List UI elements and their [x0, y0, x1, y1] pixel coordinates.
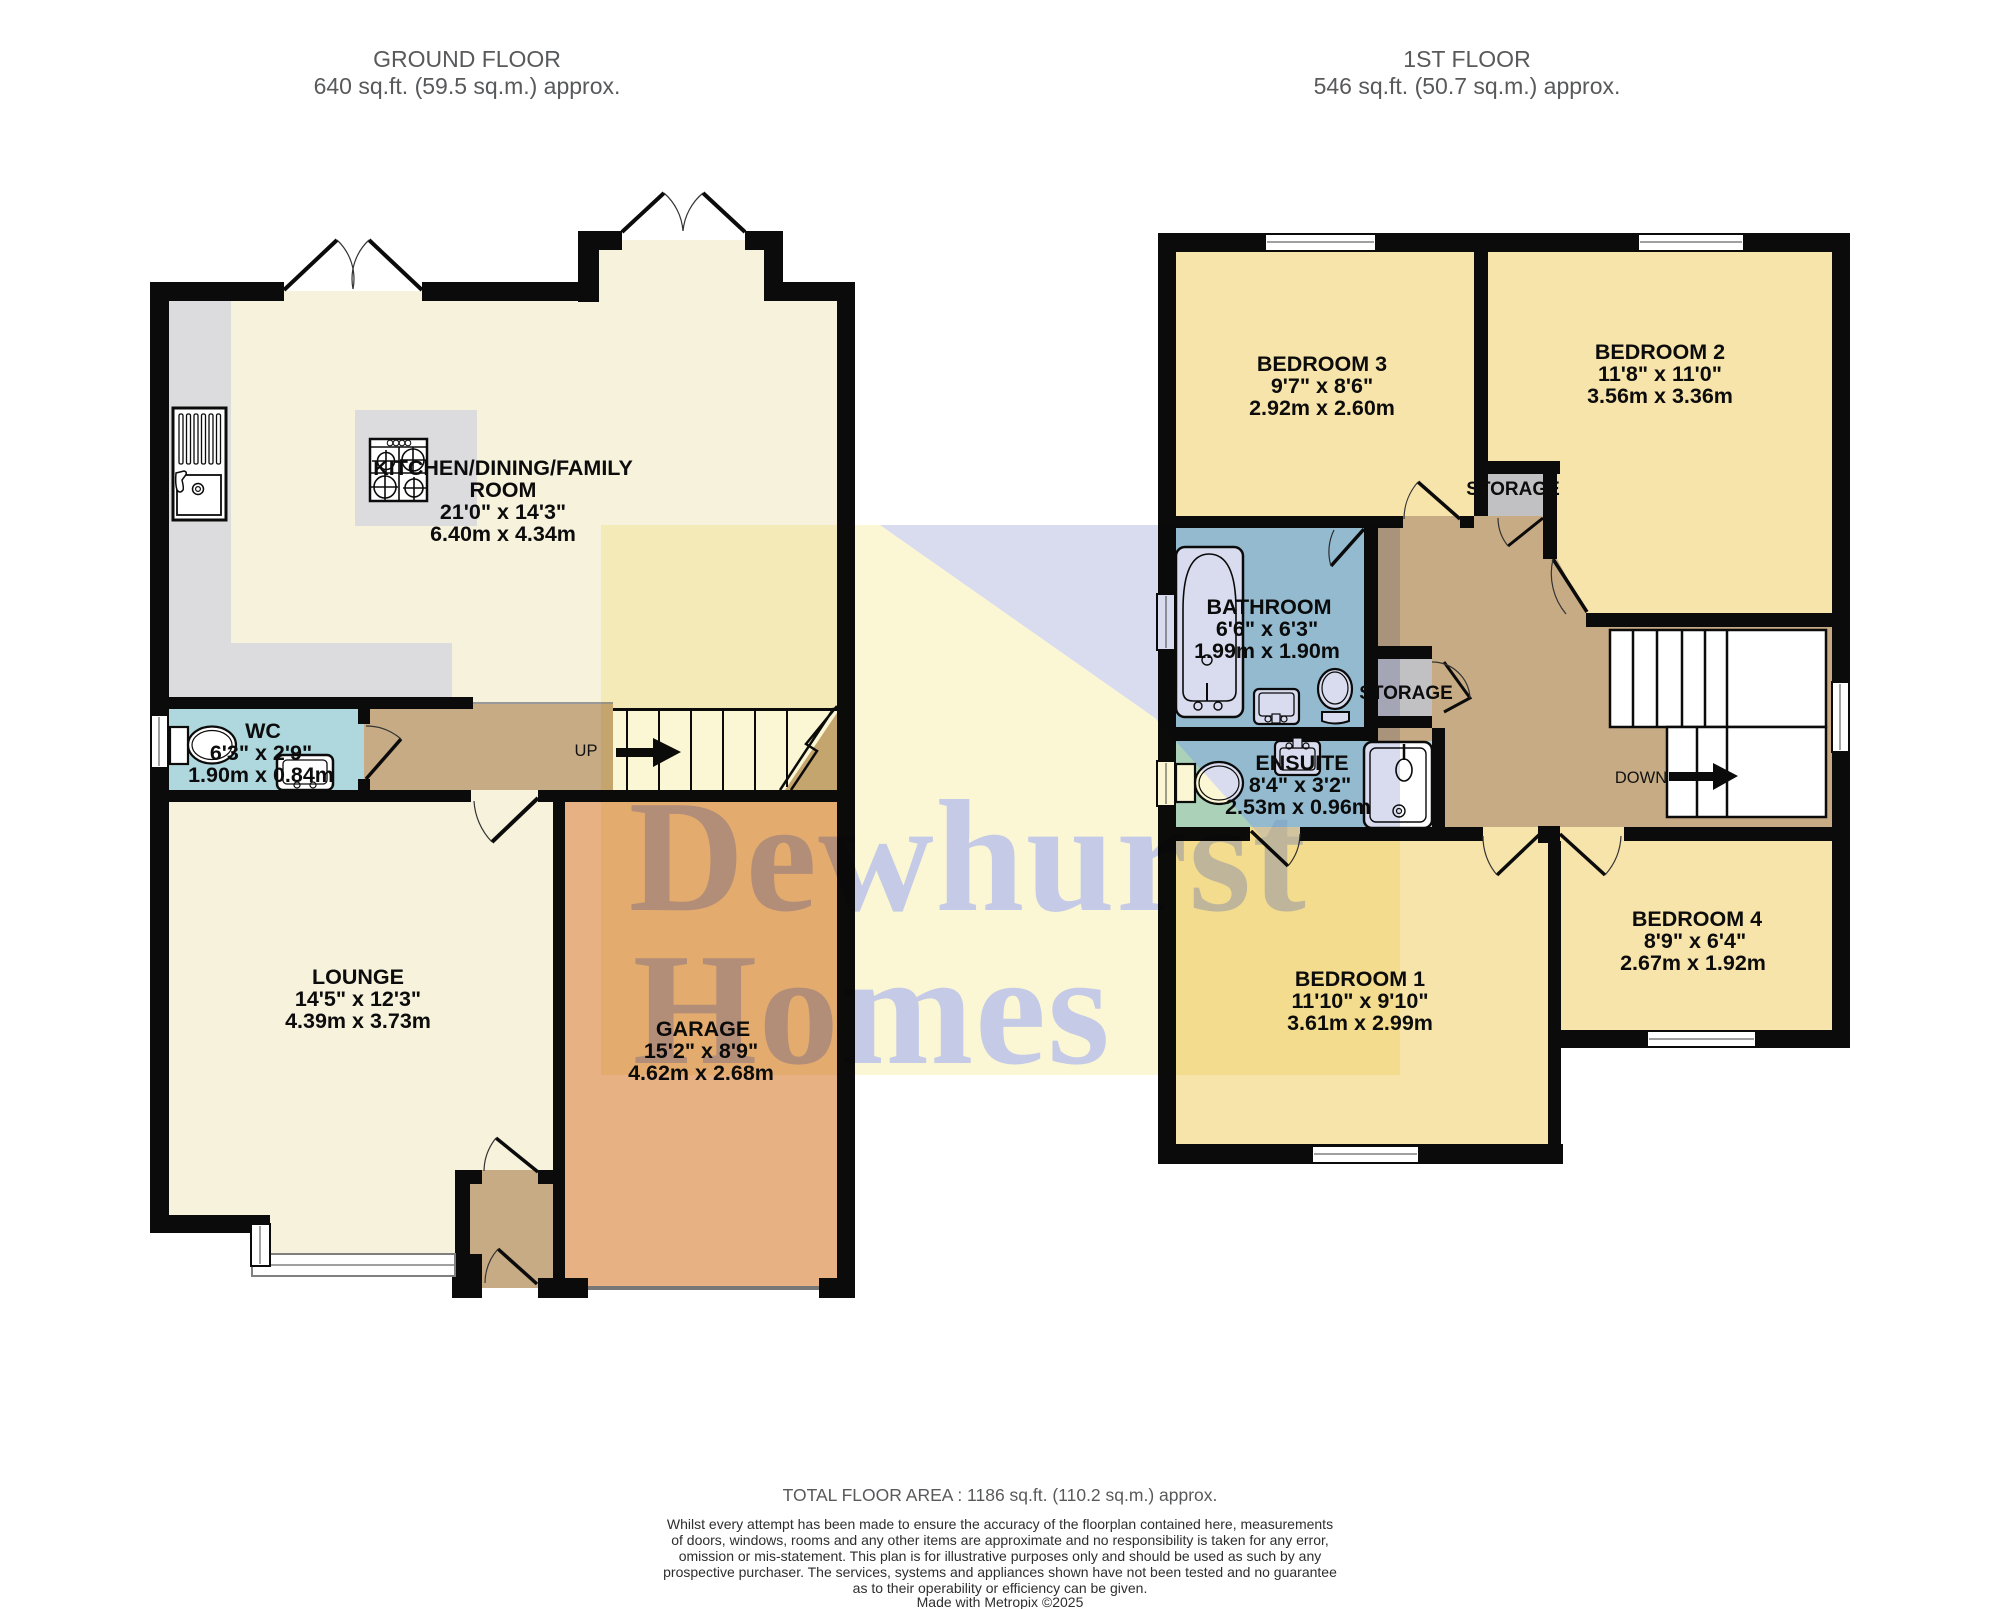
svg-text:omission or mis-statement. Thi: omission or mis-statement. This plan is …	[679, 1548, 1322, 1564]
svg-text:STORAGE: STORAGE	[1466, 479, 1560, 500]
svg-text:2.67m x 1.92m: 2.67m x 1.92m	[1620, 951, 1766, 975]
svg-text:prospective purchaser. The ser: prospective purchaser. The services, sys…	[663, 1564, 1337, 1580]
svg-text:11'8" x 11'0": 11'8" x 11'0"	[1598, 362, 1722, 386]
svg-text:640 sq.ft. (59.5 sq.m.) approx: 640 sq.ft. (59.5 sq.m.) approx.	[314, 73, 621, 99]
svg-text:1ST FLOOR: 1ST FLOOR	[1403, 46, 1530, 72]
svg-text:9'7" x 8'6": 9'7" x 8'6"	[1271, 374, 1373, 398]
svg-text:21'0" x 14'3": 21'0" x 14'3"	[440, 500, 566, 524]
svg-text:3.56m x 3.36m: 3.56m x 3.36m	[1587, 384, 1733, 408]
svg-text:ROOM: ROOM	[470, 478, 537, 502]
svg-text:1.90m x 0.84m: 1.90m x 0.84m	[188, 763, 334, 787]
svg-text:BEDROOM 3: BEDROOM 3	[1257, 352, 1387, 376]
svg-text:546 sq.ft. (50.7 sq.m.) approx: 546 sq.ft. (50.7 sq.m.) approx.	[1314, 73, 1621, 99]
svg-text:UP: UP	[575, 742, 598, 760]
svg-text:8'9" x 6'4": 8'9" x 6'4"	[1644, 929, 1746, 953]
svg-text:Homes: Homes	[633, 920, 1112, 1098]
svg-text:Whilst every attempt has been: Whilst every attempt has been made to en…	[667, 1516, 1333, 1532]
svg-text:14'5" x 12'3": 14'5" x 12'3"	[295, 987, 421, 1011]
svg-text:6.40m x 4.34m: 6.40m x 4.34m	[430, 522, 576, 546]
svg-text:BEDROOM 4: BEDROOM 4	[1632, 907, 1762, 931]
svg-text:Dewhurst: Dewhurst	[629, 767, 1308, 945]
svg-text:TOTAL FLOOR AREA : 1186 sq.ft.: TOTAL FLOOR AREA : 1186 sq.ft. (110.2 sq…	[783, 1485, 1218, 1505]
svg-text:GROUND FLOOR: GROUND FLOOR	[373, 46, 561, 72]
svg-text:WC: WC	[245, 719, 281, 743]
svg-text:2.92m x 2.60m: 2.92m x 2.60m	[1249, 396, 1395, 420]
svg-text:LOUNGE: LOUNGE	[312, 965, 404, 989]
svg-text:Made with Metropix ©2025: Made with Metropix ©2025	[917, 1594, 1084, 1609]
svg-text:DOWN: DOWN	[1615, 769, 1667, 787]
svg-text:of doors, windows, rooms and a: of doors, windows, rooms and any other i…	[671, 1532, 1329, 1548]
svg-text:6'3" x 2'9": 6'3" x 2'9"	[210, 741, 312, 765]
svg-text:BEDROOM 2: BEDROOM 2	[1595, 340, 1725, 364]
svg-text:4.39m x 3.73m: 4.39m x 3.73m	[285, 1009, 431, 1033]
svg-text:KITCHEN/DINING/FAMILY: KITCHEN/DINING/FAMILY	[373, 456, 633, 480]
